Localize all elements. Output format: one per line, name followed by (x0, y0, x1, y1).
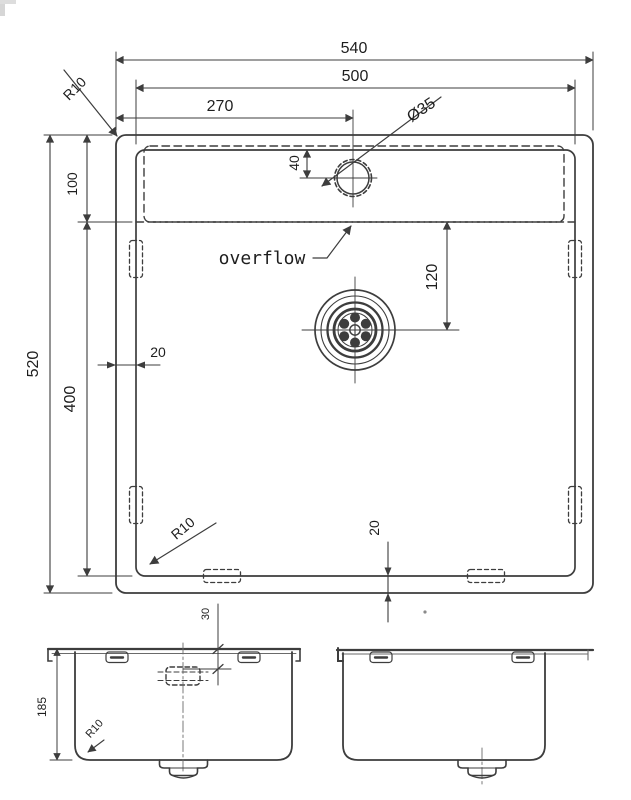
faucet-hole (330, 110, 377, 207)
plan-view: 540 500 270 Ø35 R10 100 520 400 20 20 12… (0, 0, 593, 622)
dim-bowl-depth: 185 (35, 697, 49, 717)
dim-rim-to-overflow: 100 (64, 172, 80, 196)
dim-overall-depth: 520 (25, 351, 42, 378)
mounting-clips (130, 241, 582, 583)
dim-hole-from-rim: 40 (286, 155, 302, 171)
dimension-lines (50, 60, 593, 622)
radius-rim-corner-label: R10 (60, 74, 90, 104)
front-depth-dim (50, 649, 72, 760)
dim-wall-thickness-side: 20 (150, 344, 166, 360)
drain-strainer (302, 277, 459, 383)
dim-faucet-hole-diameter: Ø35 (404, 95, 439, 126)
plan-overflow-channel (136, 146, 575, 222)
extension-lines (44, 52, 593, 593)
leader-lines (64, 70, 441, 564)
radius-bowl-corner-label: R10 (168, 514, 198, 543)
scan-artifact (0, 0, 16, 16)
plan-bowl-outline (136, 150, 575, 576)
dim-overall-width: 540 (341, 40, 368, 57)
front-radius-label: R10 (84, 717, 106, 740)
dim-bowl-width: 500 (342, 68, 369, 85)
front-bowl-body (75, 652, 292, 760)
side-view (337, 648, 593, 786)
overflow-label: overflow (219, 248, 306, 269)
scan-dot (423, 610, 426, 613)
dim-wall-thickness-bottom: 20 (366, 520, 382, 536)
side-bowl-body (343, 653, 545, 760)
dim-faucet-offset: 270 (207, 98, 234, 115)
dim-overflow-to-drain: 120 (424, 264, 441, 291)
drawing-sheet: 540 500 270 Ø35 R10 100 520 400 20 20 12… (0, 0, 631, 800)
dim-overflow-to-bowl-bottom: 400 (62, 386, 79, 413)
front-view: 185 30 R10 (35, 604, 427, 778)
dim-overflow-from-rim: 30 (200, 608, 212, 620)
sink-technical-drawing: 540 500 270 Ø35 R10 100 520 400 20 20 12… (0, 0, 631, 800)
